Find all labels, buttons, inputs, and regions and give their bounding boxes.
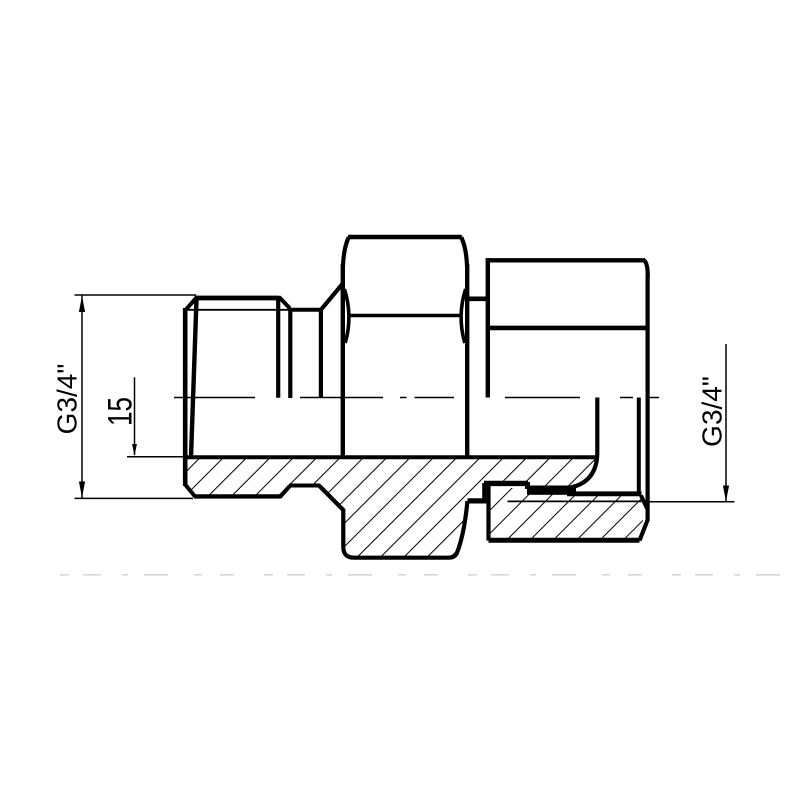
- svg-text:G3/4": G3/4": [52, 364, 83, 435]
- svg-text:15: 15: [102, 397, 140, 426]
- svg-text:G3/4": G3/4": [697, 376, 728, 447]
